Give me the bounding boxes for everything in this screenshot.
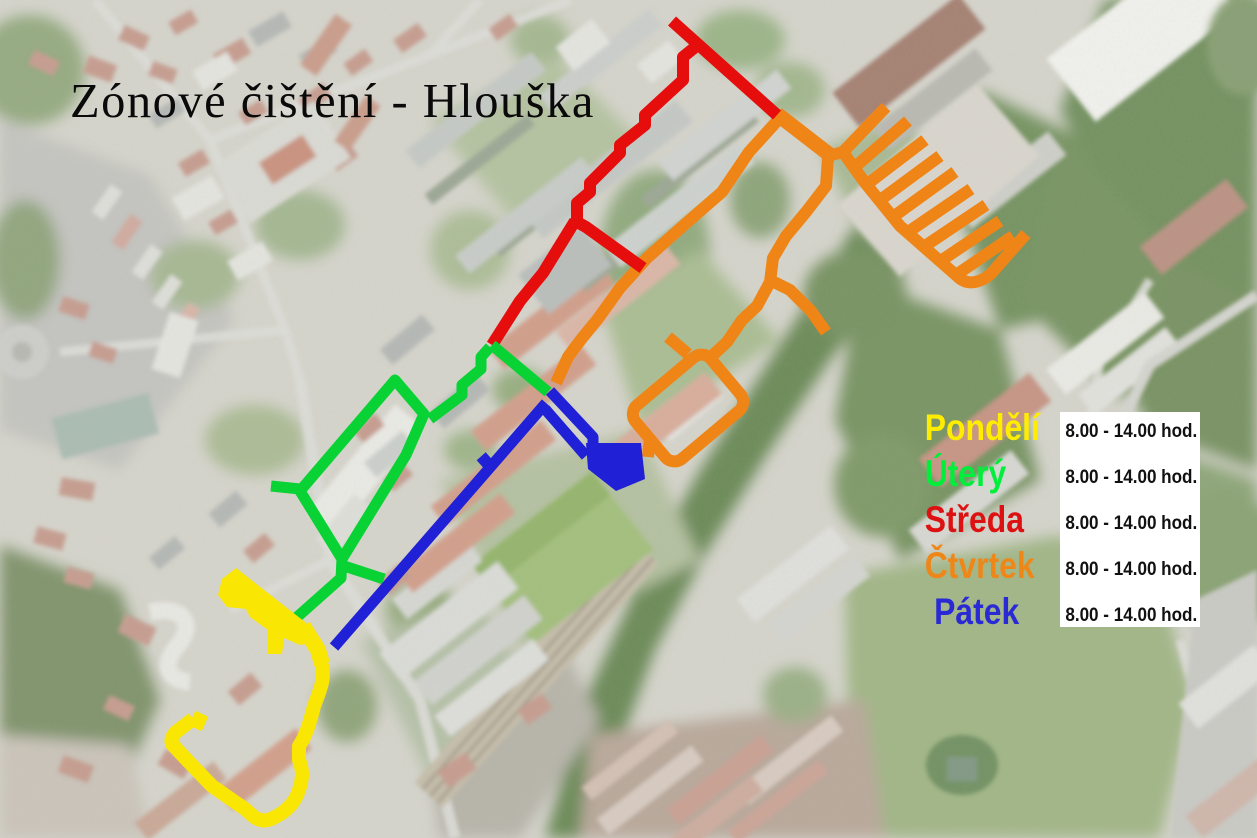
svg-text:Úterý: Úterý — [925, 452, 1007, 495]
svg-text:8.00 - 14.00 hod.: 8.00 - 14.00 hod. — [1065, 512, 1197, 533]
svg-text:Pátek: Pátek — [934, 591, 1020, 633]
svg-text:Čtvrtek: Čtvrtek — [925, 544, 1035, 587]
svg-text:Středa: Středa — [925, 499, 1025, 541]
svg-text:8.00 - 14.00 hod.: 8.00 - 14.00 hod. — [1065, 420, 1197, 441]
svg-text:8.00 - 14.00 hod.: 8.00 - 14.00 hod. — [1065, 604, 1197, 625]
svg-text:Zónové čištění - Hlouška: Zónové čištění - Hlouška — [70, 75, 595, 128]
svg-text:8.00 - 14.00 hod.: 8.00 - 14.00 hod. — [1065, 466, 1197, 487]
svg-text:Pondělí: Pondělí — [925, 407, 1041, 449]
svg-text:8.00 - 14.00 hod.: 8.00 - 14.00 hod. — [1065, 558, 1197, 579]
